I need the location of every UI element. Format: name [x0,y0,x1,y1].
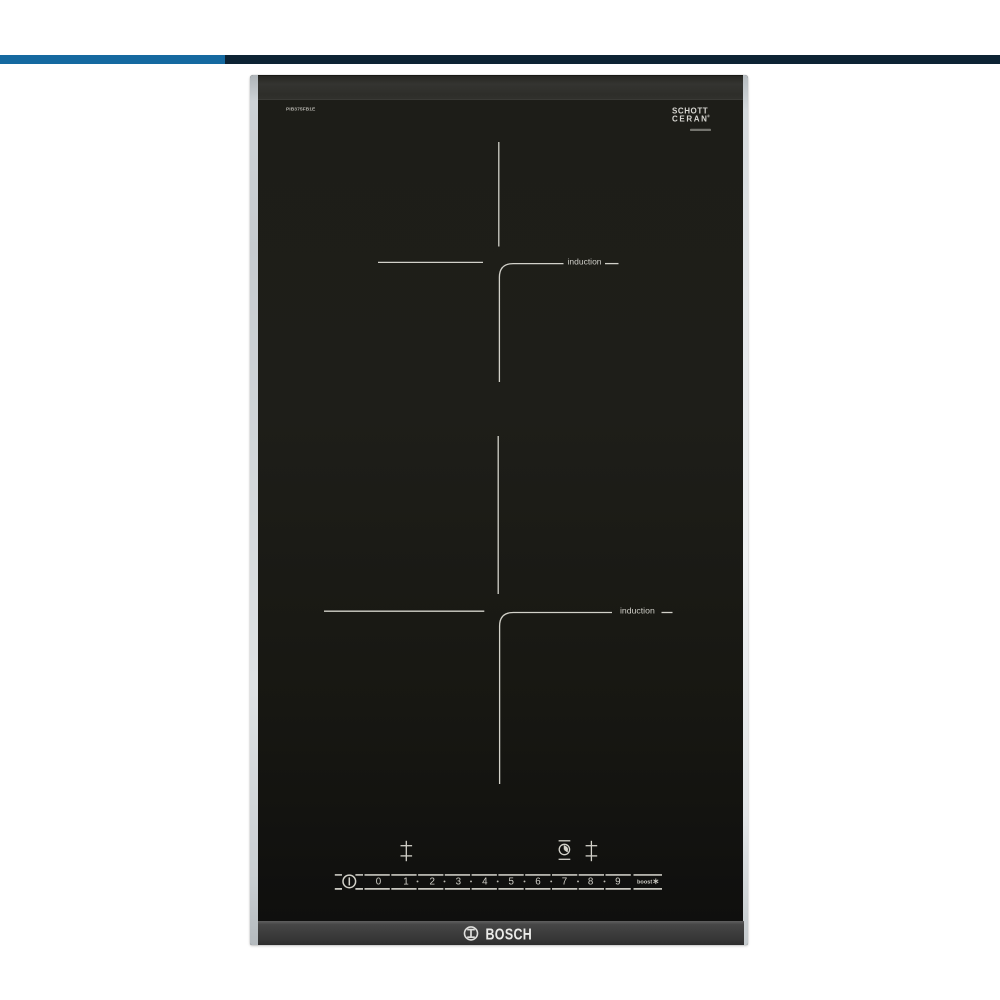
svg-text:7: 7 [562,877,567,888]
svg-text:6: 6 [535,877,541,888]
svg-text:1: 1 [403,877,408,888]
svg-text:CERAN: CERAN [672,114,708,123]
svg-text:0: 0 [376,877,382,888]
svg-text:5: 5 [508,877,514,888]
svg-text:boost: boost [637,879,652,885]
svg-text:BOSCH: BOSCH [486,926,533,944]
svg-text:induction: induction [568,257,602,267]
svg-text:®: ® [707,114,710,119]
svg-text:3: 3 [456,877,462,888]
svg-text:8: 8 [588,877,594,888]
svg-text:induction: induction [620,605,655,615]
svg-text:4: 4 [482,877,488,888]
svg-text:9: 9 [615,877,620,888]
svg-text:2: 2 [429,877,434,888]
svg-text:PIB375FB1E: PIB375FB1E [286,107,316,113]
